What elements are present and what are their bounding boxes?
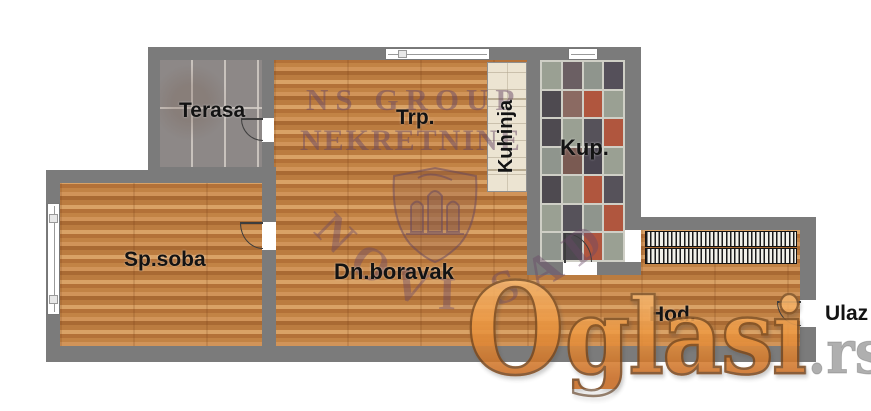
label-kupatilo: Kup. [560, 135, 609, 161]
wall-hodnik-top [625, 217, 816, 230]
kup-tile [604, 62, 623, 89]
label-ulaz: Ulaz [825, 302, 868, 326]
label-terasa: Terasa [179, 99, 245, 123]
wardrobe-hatch-top [645, 231, 797, 247]
kup-tile [563, 91, 582, 118]
kup-tile [542, 91, 561, 118]
bedroom-window [47, 203, 60, 315]
wardrobe-hatch-bottom [645, 248, 797, 264]
bedroom-door-gap [262, 222, 276, 250]
window-pane-line [571, 54, 595, 55]
kup-tile [604, 91, 623, 118]
window-cap [49, 214, 58, 223]
entrance-door-gap [800, 300, 816, 327]
kup-tile [604, 205, 623, 232]
kup-floor [540, 60, 625, 262]
label-dnevni-boravak: Dn.boravak [334, 259, 454, 285]
kup-tile [584, 176, 603, 203]
kup-tile [542, 233, 561, 260]
wall-terasa-left [148, 47, 160, 183]
wall-spsoba-top [46, 170, 160, 183]
kup-tile [563, 176, 582, 203]
bathroom-window [568, 48, 598, 60]
wall-kupatilo-left [527, 60, 540, 275]
label-hodnik: Hod. [649, 303, 696, 327]
kup-tile [584, 205, 603, 232]
wall-right-outer [800, 217, 816, 362]
site-watermark-tld: .rs [807, 323, 871, 383]
kup-tile [542, 148, 561, 175]
label-spavaca-soba: Sp.soba [124, 248, 206, 272]
wall-spsoba-divider [262, 183, 276, 346]
kup-tile [604, 176, 623, 203]
kup-tile [563, 205, 582, 232]
wall-terasa-right [262, 47, 274, 167]
bathroom-door-gap [563, 262, 597, 275]
wall-terasa-bottom [148, 167, 276, 183]
living-room-window [385, 48, 490, 60]
window-cap [398, 50, 407, 58]
floor-under-kupatilo [527, 275, 641, 346]
kup-tile [542, 119, 561, 146]
kup-tile [584, 91, 603, 118]
kup-tile [604, 233, 623, 260]
wall-kupatilo-right [625, 47, 641, 230]
label-trpezarija: Trp. [396, 106, 435, 130]
floor-plan: NS GROUP NEKRETNINE NOVI SAD Terasa Trp.… [0, 0, 871, 411]
label-kuhinja: Kuhinja [495, 100, 518, 173]
kup-tile [542, 176, 561, 203]
kup-tile [563, 62, 582, 89]
terasa-door-gap [262, 118, 274, 142]
wall-bottom [46, 346, 816, 362]
window-cap [49, 295, 58, 304]
kup-tile [542, 205, 561, 232]
kup-tile [584, 62, 603, 89]
kup-tile [542, 62, 561, 89]
